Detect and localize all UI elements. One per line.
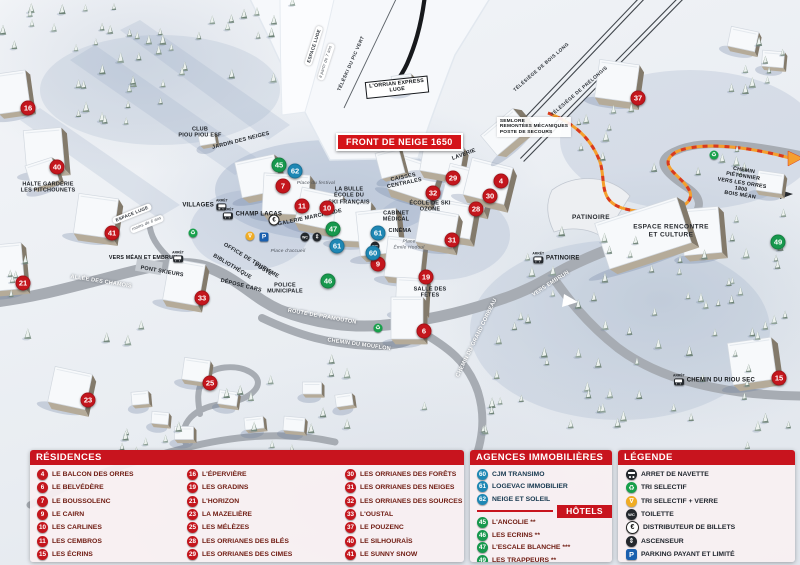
hotels-divider: HÔTELS xyxy=(470,507,612,516)
map-marker-21[interactable]: 21 xyxy=(16,276,31,291)
legend-item-la-mazeliere: 23LA MAZELIÈRE xyxy=(184,508,342,521)
navette-badge: ARRÊT xyxy=(532,252,544,263)
marker-number-badge: 49 xyxy=(477,555,488,562)
symbols-list: ARRET DE NAVETTE♻TRI SELECTIF∇TRI SELECT… xyxy=(618,465,795,561)
legend-item-logevac-immobilier: 61LOGEVAC IMMOBILIER xyxy=(474,481,608,494)
distributeur-icon: € xyxy=(626,521,639,534)
label-la-bulle-ecole-du-ski-francais: LA BULLE ÉCOLE DU SKI FRANÇAIS xyxy=(328,186,370,205)
marker-number-badge: 9 xyxy=(37,509,48,520)
navette-badge: ARRÊT xyxy=(216,199,228,210)
legend-item-label: LES CARLINES xyxy=(52,524,102,531)
map-marker-47[interactable]: 47 xyxy=(326,222,341,237)
navette-icon xyxy=(217,203,227,211)
tri-selectif-icon: ♻ xyxy=(189,229,198,238)
legend-item-tri-selectif-verre: ∇TRI SELECTIF + VERRE xyxy=(623,495,790,508)
marker-number-badge: 40 xyxy=(345,536,356,547)
label-bibliotheque: BIBLIOTHÈQUE xyxy=(211,253,252,281)
legend-item-label: LOGEVAC IMMOBILIER xyxy=(492,483,568,490)
label-semlore-remontees-mecaniques-poste-de-seco: SEMLORE REMONTÉES MÉCANIQUES POSTE DE SE… xyxy=(497,117,571,137)
map-marker-31[interactable]: 31 xyxy=(445,233,460,248)
map-marker-60[interactable]: 60 xyxy=(366,246,381,261)
label-pont-skieurs: PONT SKIEURS xyxy=(140,265,184,279)
map-marker-16[interactable]: 16 xyxy=(21,101,36,116)
bus-stop-patinoire: ARRÊTPATINOIRE xyxy=(532,252,579,263)
arret-label: ARRÊT xyxy=(222,208,234,212)
legend-item-les-orrianes-des-sources: 32LES ORRIANES DES SOURCES xyxy=(342,495,460,508)
marker-number-badge: 23 xyxy=(187,509,198,520)
legend-item-label: ASCENSEUR xyxy=(641,538,684,545)
ascenseur-icon: ⇕ xyxy=(313,233,322,242)
map-marker-28[interactable]: 28 xyxy=(469,202,484,217)
legend-item-le-cairn: 9LE CAIRN xyxy=(34,508,184,521)
legend-item-le-belvedere: 6LE BELVÉDÈRE xyxy=(34,481,184,494)
label-club-piou-piou-esf: CLUB PIOU PIOU ESF xyxy=(178,127,221,140)
tri-selectif-icon: ♻ xyxy=(374,324,383,333)
hotels-list: 45L'ANCOLIE **46LES ECRINS **47L'ESCALE … xyxy=(470,517,612,563)
label-cabinet-medical: CABINET MÉDICAL xyxy=(383,211,409,224)
legend-item-les-gradins: 19LES GRADINS xyxy=(184,481,342,494)
legend-item-label: LE SILHOURAÏS xyxy=(360,538,413,545)
marker-number-badge: 45 xyxy=(477,517,488,528)
label-office-de-tourisme: OFFICE DE TOURISME xyxy=(222,242,280,280)
arret-label: ARRÊT xyxy=(216,199,228,203)
front-de-neige-banner: FRONT DE NEIGE 1650 xyxy=(336,133,463,151)
arret-label: ARRÊT xyxy=(172,251,184,255)
legend-item-l-eperviere: 16L'ÉPERVIÈRE xyxy=(184,468,342,481)
map-marker-37[interactable]: 37 xyxy=(631,91,646,106)
marker-number-badge: 37 xyxy=(345,522,356,533)
legend-item-label: TRI SELECTIF xyxy=(641,484,687,491)
arret-label: ARRÊT xyxy=(532,252,544,256)
legend-item-le-balcon-des-orres: 4LE BALCON DES ORRES xyxy=(34,468,184,481)
legend-item-label: L'ANCOLIE ** xyxy=(492,519,536,526)
label-patinoire: PATINOIRE xyxy=(572,214,610,222)
map-marker-46[interactable]: 46 xyxy=(321,274,336,289)
marker-number-badge: 6 xyxy=(37,482,48,493)
legend-item-label: LE BALCON DES ORRES xyxy=(52,471,134,478)
legend-item-toilette: WCTOILETTE xyxy=(623,508,790,521)
map-marker-49[interactable]: 49 xyxy=(771,235,786,250)
navette-badge: ARRÊT xyxy=(222,208,234,219)
legend-item-label: LES ÉCRINS xyxy=(52,551,93,558)
tri-selectif-verre-icon: ∇ xyxy=(626,496,637,507)
label-chemin-pietonnier-vers-les-orres-1800-bois: CHEMIN PIÉTONNIER VERS LES ORRES 1800 BO… xyxy=(711,163,773,203)
map-marker-11[interactable]: 11 xyxy=(295,199,310,214)
legend-item-label: L'ESCALE BLANCHE *** xyxy=(492,544,570,551)
bus-stop-chemin-du-riou-sec: ARRÊTCHEMIN DU RIOU SEC xyxy=(673,374,755,385)
label-place-d-accueil: Place d'accueil xyxy=(271,249,306,255)
marker-number-badge: 60 xyxy=(477,469,488,480)
legend-item-parking-payant-et-limite: PPARKING PAYANT ET LIMITÉ xyxy=(623,548,790,561)
legend-item-les-trappeurs: 49LES TRAPPEURS ** xyxy=(474,554,608,562)
label-allee-des-chamois: ALLÉE DES CHAMOIS xyxy=(70,274,132,290)
legend-item-label: LES CEMBROS xyxy=(52,538,102,545)
legend-item-label: TOILETTE xyxy=(641,511,674,518)
label-espace-rencontre-et-culture: ESPACE RENCONTRE ET CULTURE xyxy=(633,223,709,238)
legend-item-label: L'OUSTAL xyxy=(360,511,393,518)
label-place-du-festival: Place du festival xyxy=(297,181,335,187)
legend-item-label: DISTRIBUTEUR DE BILLETS xyxy=(643,524,735,531)
map-marker-23[interactable]: 23 xyxy=(81,393,96,408)
marker-number-badge: 16 xyxy=(187,469,198,480)
label-chemin-du-mouflon: CHEMIN DU MOUFLON xyxy=(327,337,391,352)
marker-number-badge: 21 xyxy=(187,496,198,507)
toilette-icon: WC xyxy=(626,509,637,520)
navette-icon xyxy=(533,256,543,264)
legend-item-l-escale-blanche: 47L'ESCALE BLANCHE *** xyxy=(474,542,608,555)
legend-item-label: LES ECRINS ** xyxy=(492,532,540,539)
residences-list: 4LE BALCON DES ORRES6LE BELVÉDÈRE7LE BOU… xyxy=(30,465,464,561)
legend-item-label: LES ORRIANES DES NEIGES xyxy=(360,484,454,491)
residences-column-1: 4LE BALCON DES ORRES6LE BELVÉDÈRE7LE BOU… xyxy=(34,468,184,561)
map-marker-41[interactable]: 41 xyxy=(105,226,120,241)
legend-item-label: LES ORRIANES DES SOURCES xyxy=(360,498,462,505)
label-place-emile-hodoul: Place Émile Hodoul xyxy=(394,239,425,250)
legend-item-le-silhourais: 40LE SILHOURAÏS xyxy=(342,534,460,547)
map-marker-32[interactable]: 32 xyxy=(426,186,441,201)
legend-item-les-orrianes-des-cimes: 29LES ORRIANES DES CIMES xyxy=(184,548,342,561)
legend-item-les-carlines: 10LES CARLINES xyxy=(34,521,184,534)
tri-selectif-icon: ♻ xyxy=(710,151,719,160)
residences-column-3: 30LES ORRIANES DES FORÊTS31LES ORRIANES … xyxy=(342,468,460,561)
resort-map: CLUB PIOU PIOU ESFJARDIN DES NEIGESHALTE… xyxy=(0,0,800,565)
legend-item-label: LE BOUSSOLENC xyxy=(52,498,111,505)
marker-number-badge: 4 xyxy=(37,469,48,480)
tri-selectif-icon: ♻ xyxy=(626,482,637,493)
legend-item-label: LE BELVÉDÈRE xyxy=(52,484,104,491)
tri-selectif-verre-icon: ∇ xyxy=(246,232,255,241)
legend-item-label: CJM TRANSIMO xyxy=(492,471,545,478)
marker-number-badge: 62 xyxy=(477,494,488,505)
map-marker-29[interactable]: 29 xyxy=(446,171,461,186)
distributeur-icon: € xyxy=(269,215,280,226)
legend-symbols-title: LÉGENDE xyxy=(618,450,795,465)
label-moins-de-6-ans: moins de 6 ans xyxy=(129,214,164,234)
label-depose-cars: DÉPOSE CARS xyxy=(220,278,263,295)
label-route-de-pramouton: ROUTE DE PRAMOUTON xyxy=(287,308,357,326)
legend-item-cjm-transimo: 60CJM TRANSIMO xyxy=(474,468,608,481)
legend-item-label: LES GRADINS xyxy=(202,484,248,491)
legend-item-l-oustal: 33L'OUSTAL xyxy=(342,508,460,521)
legend-agences-title: AGENCES IMMOBILIÈRES xyxy=(470,450,612,465)
navette-icon xyxy=(223,212,233,220)
label-caisses-centrales: CAISSES CENTRALES xyxy=(385,171,422,191)
map-marker-62[interactable]: 62 xyxy=(288,164,303,179)
ascenseur-icon: ⇕ xyxy=(626,536,637,547)
marker-number-badge: 7 xyxy=(37,496,48,507)
label-police-municipale: POLICE MUNICIPALE xyxy=(267,283,303,296)
label-poste: POSTE xyxy=(253,262,273,278)
marker-number-badge: 15 xyxy=(37,549,48,560)
label-vers-mean-et-embrun: VERS MÉAN ET EMBRUN xyxy=(109,255,177,261)
legend-item-les-ecrins: 15LES ÉCRINS xyxy=(34,548,184,561)
navette-badge: ARRÊT xyxy=(673,374,685,385)
legend-item-label: LES MÉLÈZES xyxy=(202,524,249,531)
map-marker-40[interactable]: 40 xyxy=(50,160,65,175)
marker-number-badge: 29 xyxy=(187,549,198,560)
legend-item-le-pouzenc: 37LE POUZENC xyxy=(342,521,460,534)
marker-number-badge: 32 xyxy=(345,496,356,507)
label-vers-embrun: VERS EMBRUN xyxy=(531,270,570,299)
label-a-partir-de-7-ans: à partir de 7 ans xyxy=(317,43,335,81)
navette-badge: ARRÊT xyxy=(172,251,184,262)
legend-item-ascenseur: ⇕ASCENSEUR xyxy=(623,534,790,547)
map-marker-45[interactable]: 45 xyxy=(272,158,287,173)
marker-number-badge: 11 xyxy=(37,536,48,547)
marker-number-badge: 19 xyxy=(187,482,198,493)
map-marker-25[interactable]: 25 xyxy=(203,376,218,391)
bus-stop-label: ARRÊT xyxy=(172,251,184,262)
legend-item-label: NEIGE ET SOLEIL xyxy=(492,496,550,503)
legend-item-label: LA MAZELIÈRE xyxy=(202,511,252,518)
parking-icon: P xyxy=(260,233,269,242)
marker-number-badge: 47 xyxy=(477,542,488,553)
marker-number-badge: 61 xyxy=(477,481,488,492)
legend-item-label: TRI SELECTIF + VERRE xyxy=(641,498,718,505)
bus-stop-villages: VILLAGESARRÊT xyxy=(182,199,227,210)
marker-number-badge: 31 xyxy=(345,482,356,493)
label-chemin-du-grand-corbeau: CHEMIN DU GRAND CORBEAU xyxy=(455,298,499,379)
label-cinema: CINÉMA xyxy=(389,228,412,234)
legend-item-label: L'ÉPERVIÈRE xyxy=(202,471,247,478)
legend-symbols-panel: LÉGENDE ARRET DE NAVETTE♻TRI SELECTIF∇TR… xyxy=(618,450,795,562)
map-marker-61[interactable]: 61 xyxy=(371,226,386,241)
legend-item-distributeur-de-billets: €DISTRIBUTEUR DE BILLETS xyxy=(623,521,790,534)
bus-stop-name: PATINOIRE xyxy=(546,255,580,261)
legend-item-les-ecrins: 46LES ECRINS ** xyxy=(474,529,608,542)
legend-item-les-cembros: 11LES CEMBROS xyxy=(34,534,184,547)
label-espace-luge: ESPACE LUGE xyxy=(304,25,324,66)
legend-item-label: LE CAIRN xyxy=(52,511,84,518)
marker-number-badge: 33 xyxy=(345,509,356,520)
navette-icon xyxy=(173,255,183,263)
marker-number-badge: 28 xyxy=(187,536,198,547)
legend-hotels-title: HÔTELS xyxy=(557,505,612,518)
marker-number-badge: 25 xyxy=(187,522,198,533)
marker-number-badge: 41 xyxy=(345,549,356,560)
label-telesiege-de-prelongis: TÉLÉSIÈGE DE PRÉLONGIS xyxy=(550,66,609,118)
legend-item-label: LES ORRIANES DES FORÊTS xyxy=(360,471,456,478)
legend-item-label: ARRET DE NAVETTE xyxy=(641,471,709,478)
map-marker-15[interactable]: 15 xyxy=(772,371,787,386)
hotels-divider-line xyxy=(477,510,553,512)
map-marker-30[interactable]: 30 xyxy=(483,189,498,204)
legend-item-label: L'HORIZON xyxy=(202,498,239,505)
label-espace-luge: ESPACE LUGE xyxy=(112,203,153,225)
legend-item-les-orrianes-des-bles: 28LES ORRIANES DES BLÉS xyxy=(184,534,342,547)
legend-item-arret-de-navette: ARRET DE NAVETTE xyxy=(623,468,790,481)
label-l-orrian-express-luge: L'ORRIAN EXPRESS LUGE xyxy=(365,75,429,98)
map-marker-6[interactable]: 6 xyxy=(417,324,432,339)
map-marker-4[interactable]: 4 xyxy=(494,174,509,189)
label-salle-des-fetes: SALLE DES FÊTES xyxy=(414,287,447,300)
label-jardin-des-neiges: JARDIN DES NEIGES xyxy=(212,131,271,152)
label-ecole-de-ski-ozone: ÉCOLE DE SKI OZONE xyxy=(409,201,450,214)
legend-item-le-sunny-snow: 41LE SUNNY SNOW xyxy=(342,548,460,561)
toilette-icon: WC xyxy=(301,233,310,242)
marker-number-badge: 10 xyxy=(37,522,48,533)
legend-agences-panel: AGENCES IMMOBILIÈRES 60CJM TRANSIMO61LOG… xyxy=(470,450,612,562)
legend-item-l-horizon: 21L'HORIZON xyxy=(184,495,342,508)
legend-item-les-melezes: 25LES MÉLÈZES xyxy=(184,521,342,534)
legend-item-label: LES ORRIANES DES BLÉS xyxy=(202,538,289,545)
agences-list: 60CJM TRANSIMO61LOGEVAC IMMOBILIER62NEIG… xyxy=(470,465,612,506)
legend-item-les-orrianes-des-neiges: 31LES ORRIANES DES NEIGES xyxy=(342,481,460,494)
map-marker-19[interactable]: 19 xyxy=(419,270,434,285)
legend-item-tri-selectif: ♻TRI SELECTIF xyxy=(623,481,790,494)
legend-item-label: LES TRAPPEURS ** xyxy=(492,557,556,562)
navette-icon xyxy=(674,378,684,386)
map-marker-33[interactable]: 33 xyxy=(195,291,210,306)
legend-item-label: LES ORRIANES DES CIMES xyxy=(202,551,292,558)
legend-item-l-ancolie: 45L'ANCOLIE ** xyxy=(474,517,608,530)
legend-item-label: PARKING PAYANT ET LIMITÉ xyxy=(641,551,735,558)
legend-item-label: LE SUNNY SNOW xyxy=(360,551,417,558)
bus-stop-name: VILLAGES xyxy=(182,202,214,208)
legend-item-les-orrianes-des-forets: 30LES ORRIANES DES FORÊTS xyxy=(342,468,460,481)
map-marker-10[interactable]: 10 xyxy=(320,201,335,216)
legend-residences-panel: RÉSIDENCES 4LE BALCON DES ORRES6LE BELVÉ… xyxy=(30,450,464,562)
label-telesiege-de-bois-long: TÉLÉSIÈGE DE BOIS LONG xyxy=(513,42,571,93)
parking-icon: P xyxy=(626,549,637,560)
legend-residences-title: RÉSIDENCES xyxy=(30,450,464,465)
map-marker-7[interactable]: 7 xyxy=(276,179,291,194)
label-teleski-du-pic-vert: TÉLÉSKI DU PIC VERT xyxy=(337,36,366,93)
label-halte-garderie-les-pitchounets: HALTE GARDERIE LES PITCHOUNETS xyxy=(21,182,76,195)
navette-icon xyxy=(626,469,637,480)
marker-number-badge: 30 xyxy=(345,469,356,480)
arret-label: ARRÊT xyxy=(673,374,685,378)
legend-item-le-boussolenc: 7LE BOUSSOLENC xyxy=(34,495,184,508)
legend-item-label: LE POUZENC xyxy=(360,524,404,531)
bus-stop-name: CHEMIN DU RIOU SEC xyxy=(687,377,755,383)
map-marker-61-b[interactable]: 61 xyxy=(330,239,345,254)
residences-column-2: 16L'ÉPERVIÈRE19LES GRADINS21L'HORIZON23L… xyxy=(184,468,342,561)
marker-number-badge: 46 xyxy=(477,530,488,541)
